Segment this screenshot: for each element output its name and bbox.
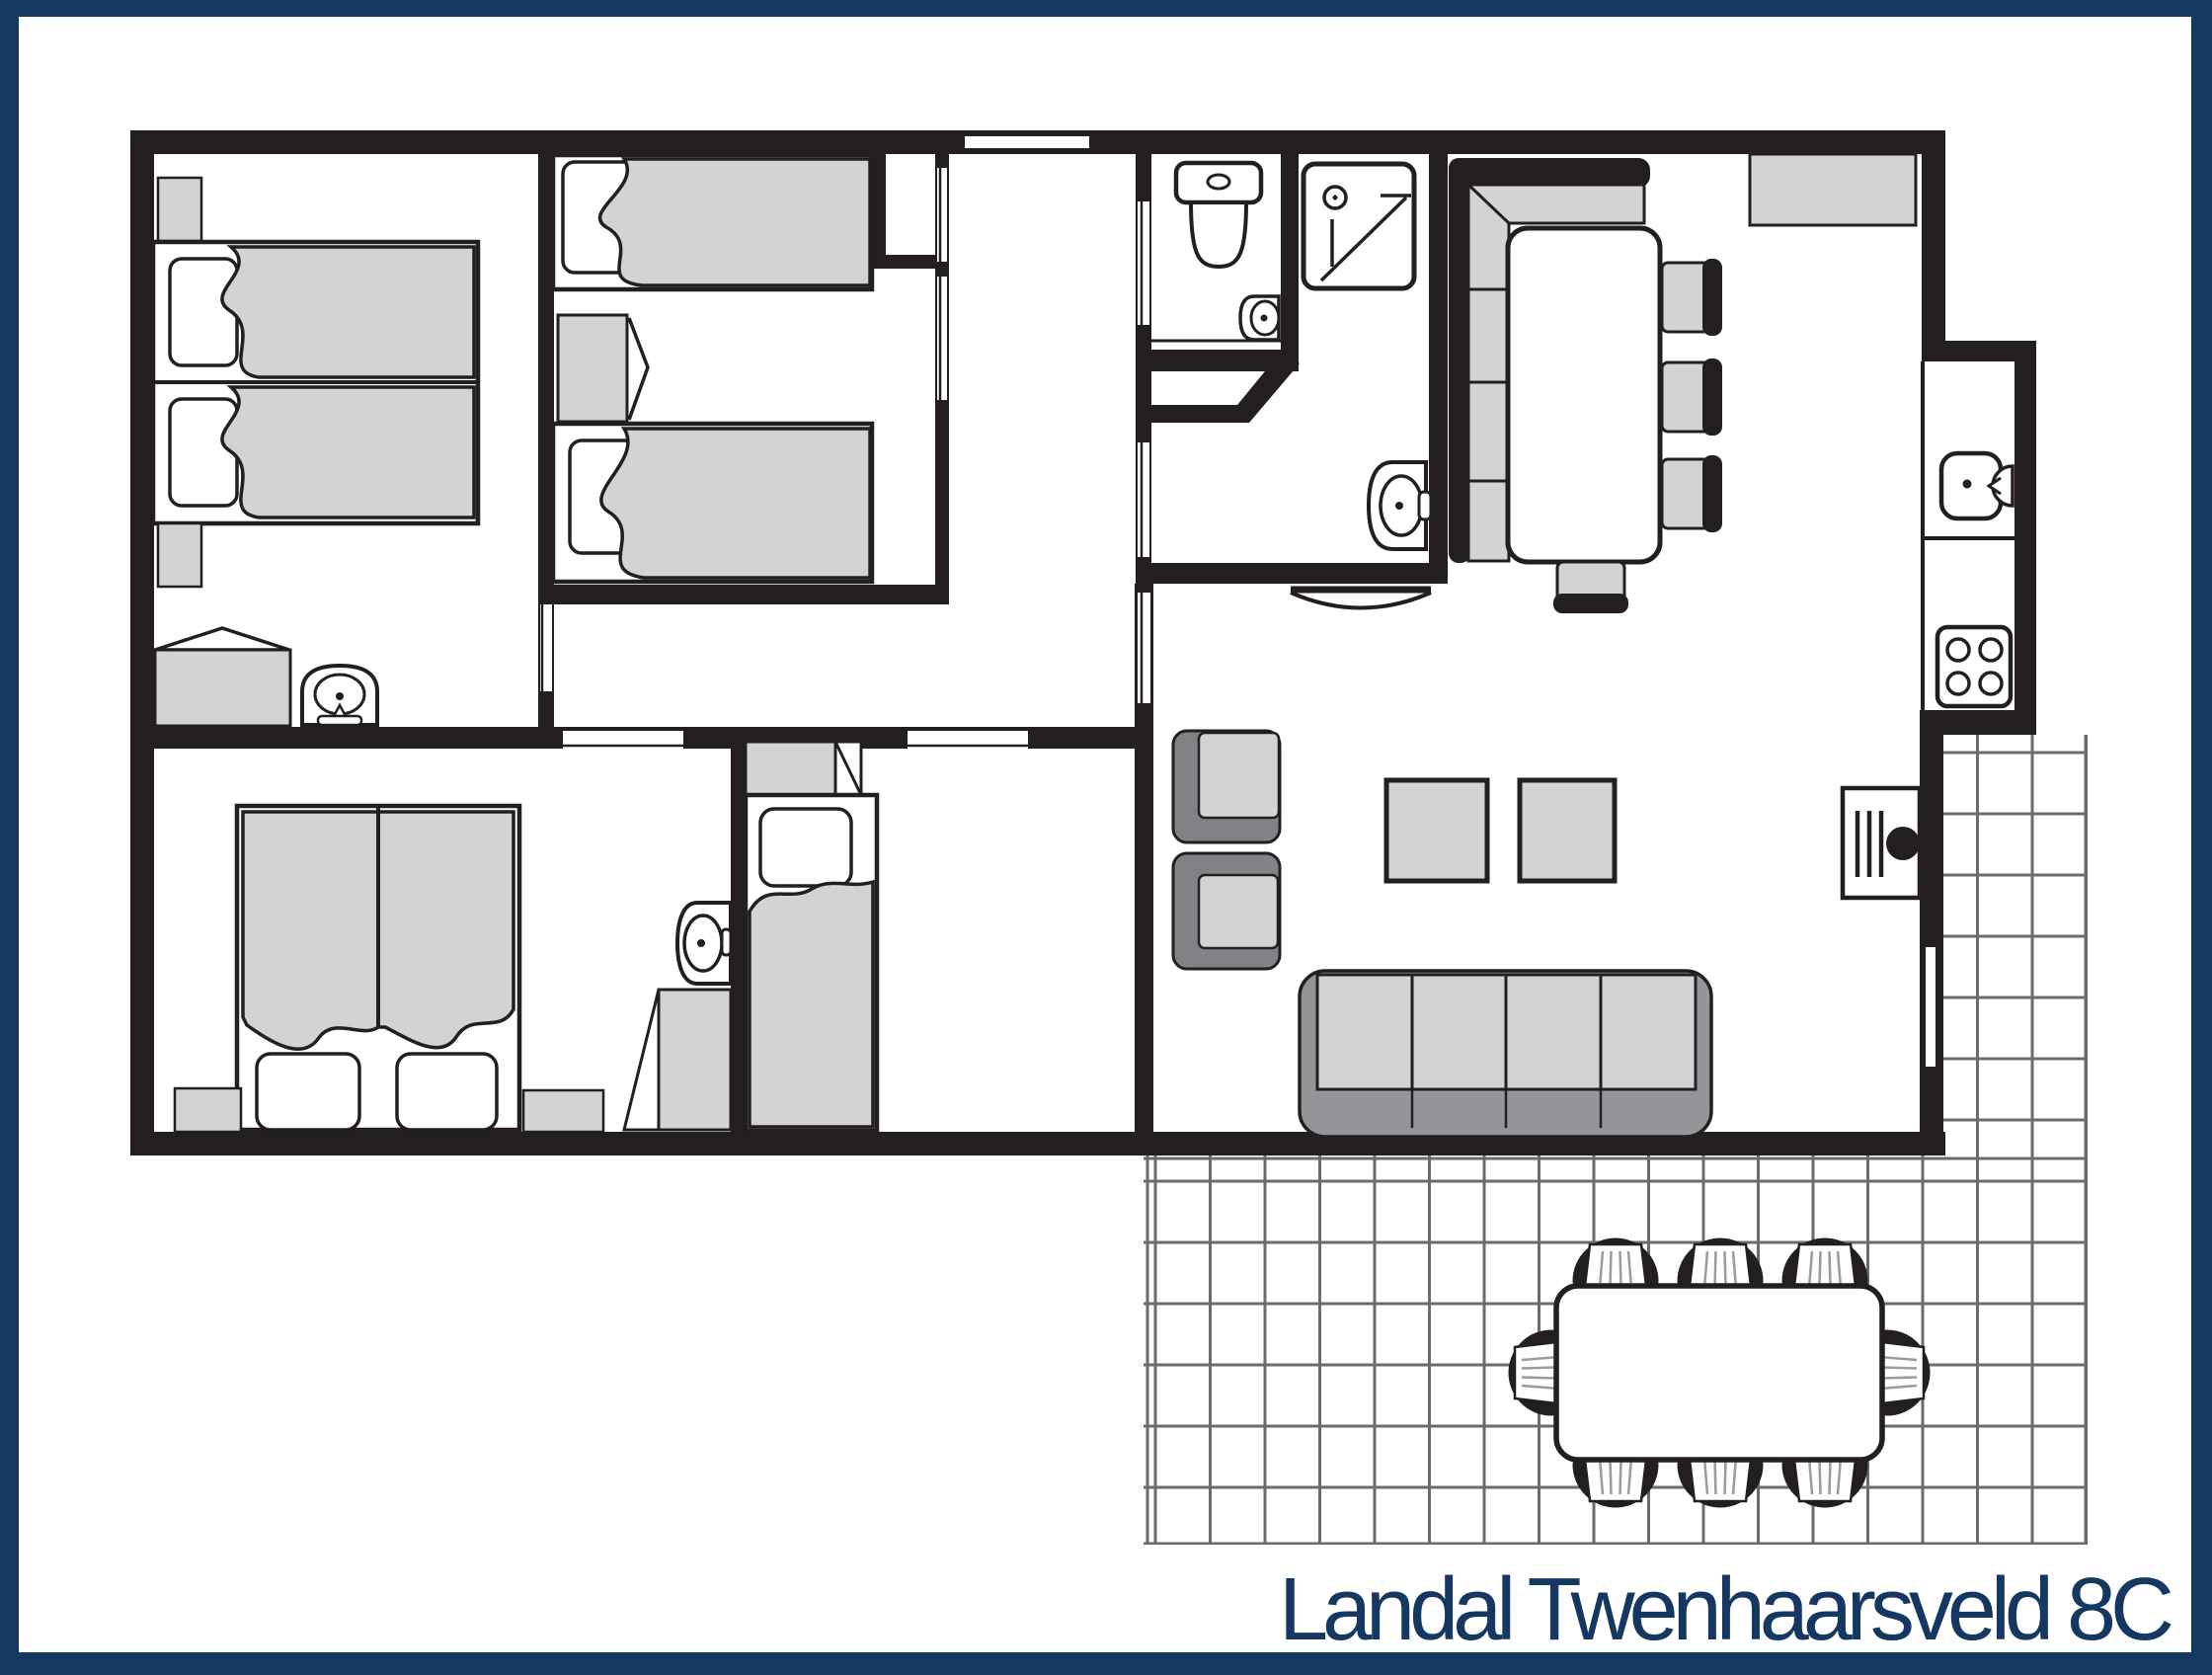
svg-text:Landal Twenhaarsveld 8C: Landal Twenhaarsveld 8C — [1279, 1560, 2172, 1659]
